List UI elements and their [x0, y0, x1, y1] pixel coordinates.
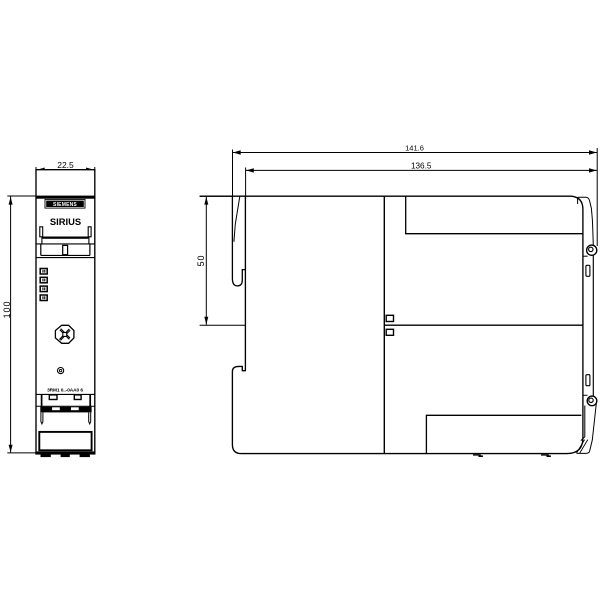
- svg-text:100: 100: [2, 301, 12, 319]
- svg-text:22.5: 22.5: [57, 160, 74, 170]
- svg-text:50: 50: [196, 255, 206, 267]
- svg-text:SIRIUS: SIRIUS: [50, 216, 81, 227]
- svg-text:SIEMENS: SIEMENS: [53, 202, 77, 208]
- svg-text:141.6: 141.6: [405, 143, 424, 152]
- svg-text:3RM1 0..-0AA0 6: 3RM1 0..-0AA0 6: [47, 388, 83, 394]
- svg-text:136.5: 136.5: [411, 161, 432, 170]
